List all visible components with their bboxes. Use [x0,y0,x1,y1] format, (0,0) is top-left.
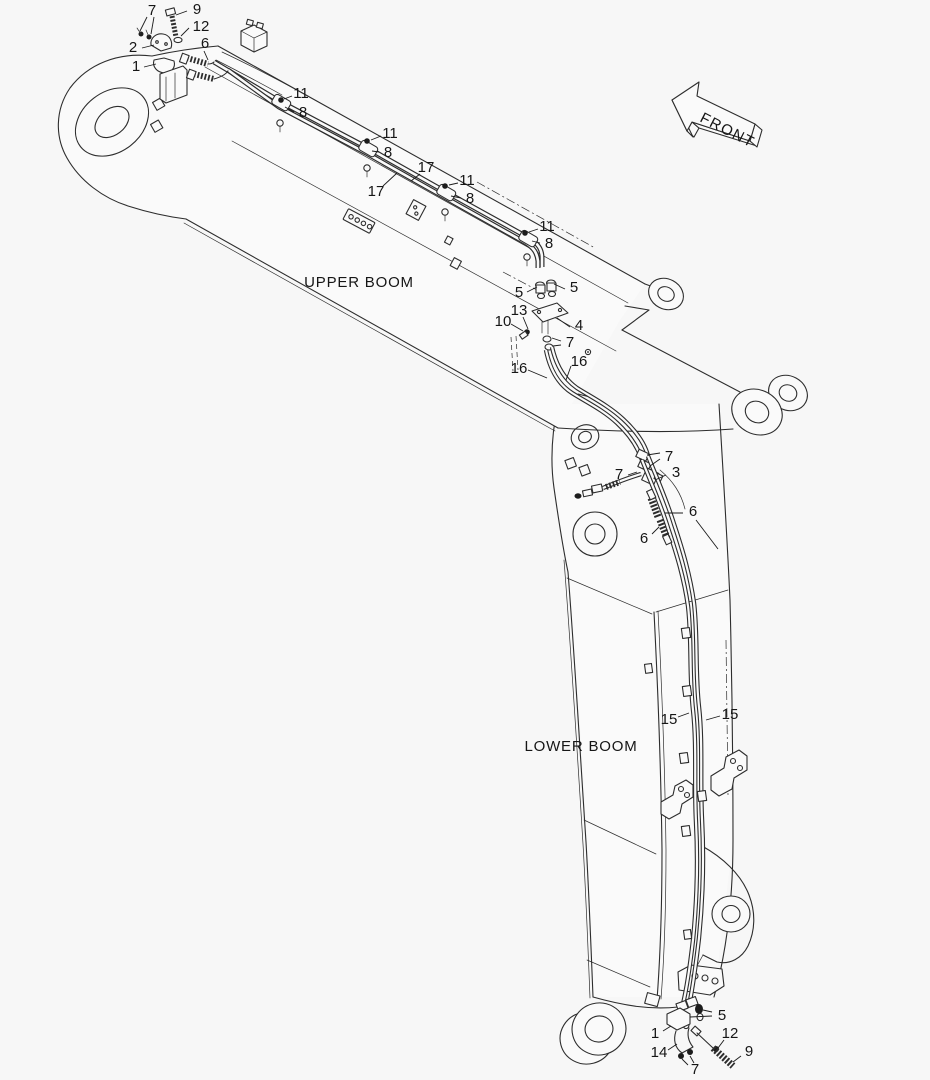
callout-number: 11 [539,218,555,235]
leader-line [142,45,154,48]
leader-line [690,1016,712,1017]
callout-number: 16 [511,360,528,377]
callout-number: 7 [566,334,574,351]
leader-line [703,1010,712,1012]
head-big-boss [573,512,617,556]
callout-number: 11 [459,172,475,189]
leader-line [682,1059,688,1065]
callout-number: 11 [382,125,398,142]
callout-number: 9 [193,1,201,18]
callout-number: 5 [570,279,578,296]
leader-line [733,1056,741,1062]
callout-number: 3 [672,464,680,481]
callout-number: 8 [545,235,553,252]
callout-number: 16 [571,353,588,370]
bolt-dot [522,230,528,236]
callout-number: 15 [722,706,739,723]
callout-number: 13 [511,302,528,319]
callout-number: 6 [689,503,697,520]
callout-1: 1 [651,1025,671,1042]
callout-number: 8 [466,190,474,207]
callout-7: 7 [682,1056,699,1078]
boom-piping-diagram: FRONT UPPER BOOM LOWER BOOM 791226111811… [0,0,930,1080]
callout-number: 7 [148,2,156,19]
callout-12: 12 [181,18,209,36]
callout-2: 2 [129,39,154,56]
callout-number: 8 [384,144,392,161]
callout-9: 9 [733,1043,753,1062]
leader-line [176,11,187,15]
callout-number: 11 [293,85,309,102]
callout-number: 9 [745,1043,753,1060]
callout-number: 6 [640,530,648,547]
side-bracket-boss [712,896,750,932]
callout-7: 7 [140,2,156,34]
callout-number: 8 [299,104,307,121]
leader-line [140,17,147,31]
bolt-dot [442,183,448,189]
callout-number: 12 [193,18,210,35]
callout-12: 12 [718,1025,738,1048]
callout-number: 17 [418,159,435,176]
callout-number: 12 [722,1025,739,1042]
callout-number: 7 [665,448,673,465]
callout-number: 5 [515,284,523,301]
callout-9: 9 [176,1,201,18]
callout-number: 7 [691,1061,699,1078]
leader-line [181,28,189,36]
leader-line [663,1026,671,1031]
bolt-dot [364,138,370,144]
bolt-dot [278,97,284,103]
upper-boom-label: UPPER BOOM [304,274,414,291]
callout-number: 6 [201,35,209,52]
callout-number: 15 [661,711,678,728]
callout-number: 5 [718,1007,726,1024]
leader-line [668,1044,677,1050]
front-direction-arrow: FRONT [672,82,762,151]
leader-line [151,17,154,34]
callout-number: 14 [651,1044,668,1061]
callout-number: 7 [615,466,623,483]
parts-diagram-page: FRONT UPPER BOOM LOWER BOOM 791226111811… [0,0,930,1080]
callout-number: 4 [575,317,583,334]
callout-number: 2 [129,39,137,56]
fork-upper-boss [643,272,689,315]
callout-number: 17 [368,183,385,200]
callout-number: 1 [651,1025,659,1042]
callout-number: 1 [132,58,140,75]
lower-boom-label: LOWER BOOM [524,738,637,755]
callout-14: 14 [651,1044,677,1061]
callout-number: 10 [495,313,512,330]
